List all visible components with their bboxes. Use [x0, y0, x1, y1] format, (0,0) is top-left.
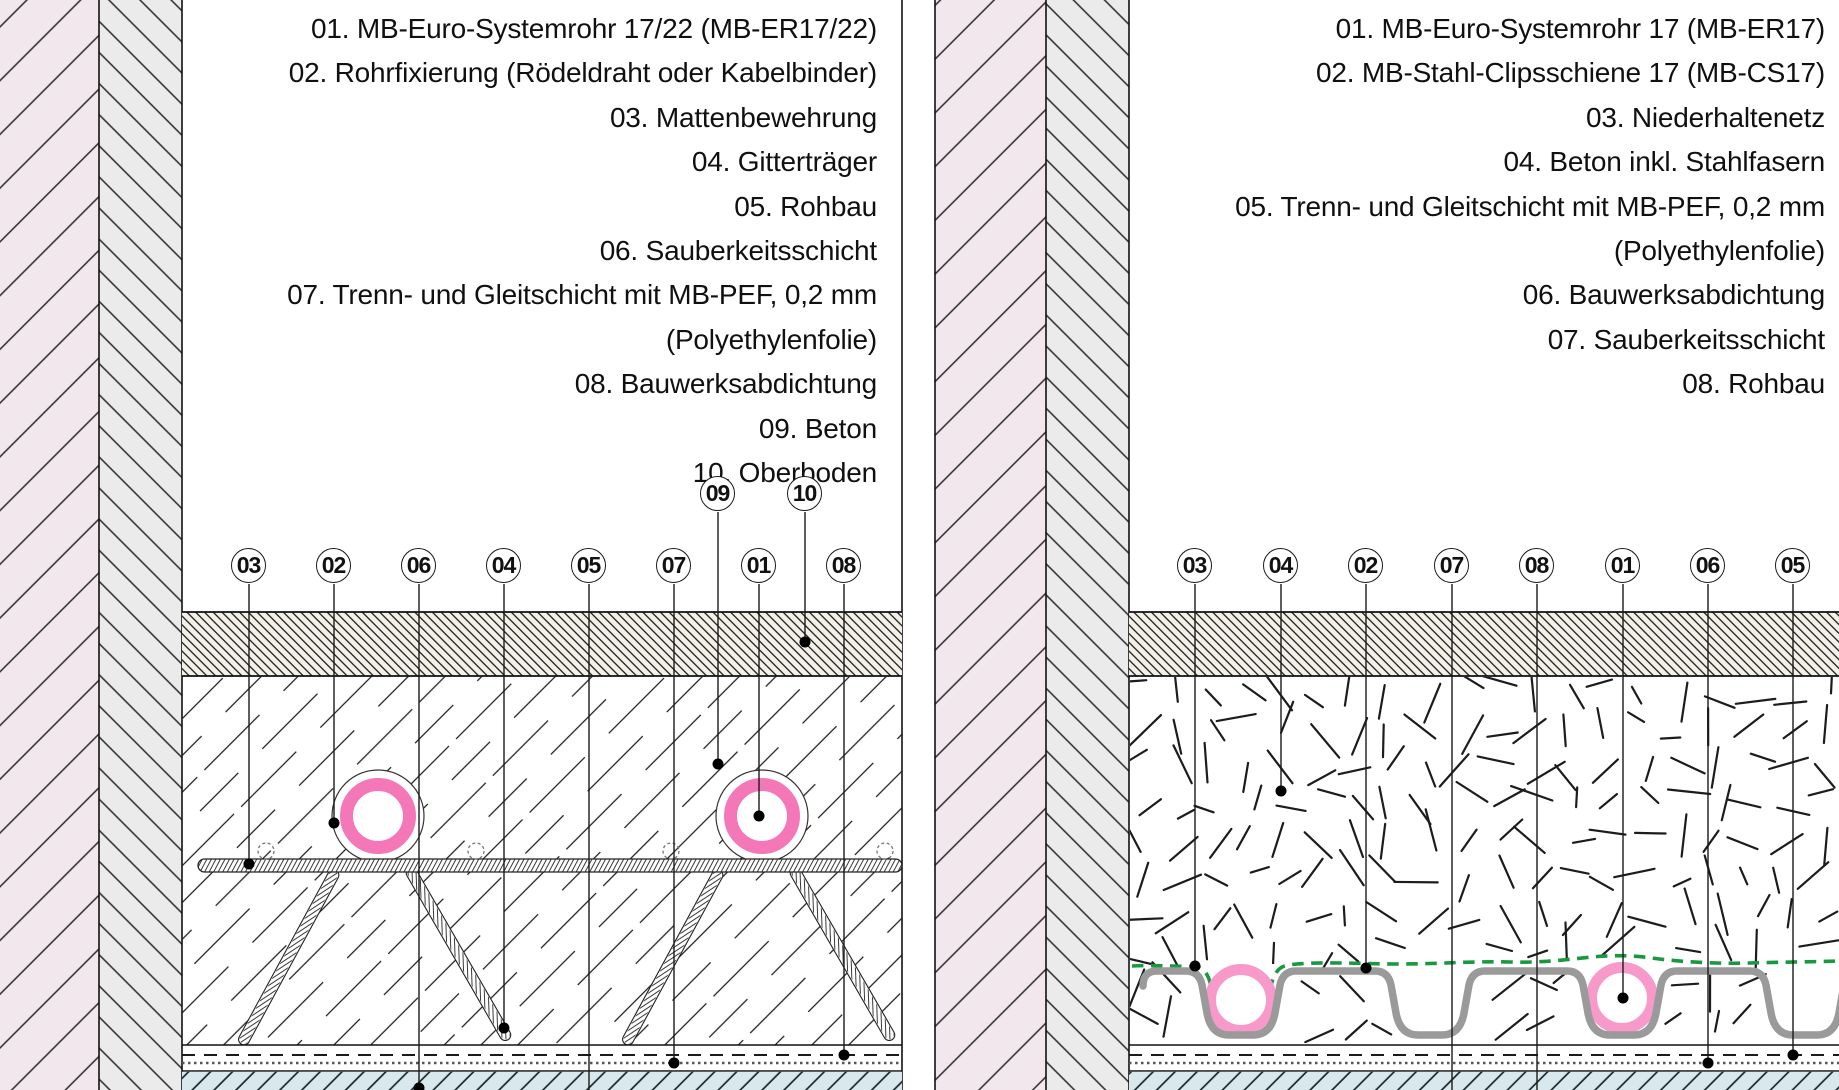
floor-heating-detail-sheet: 01. MB-Euro-Systemrohr 17/22 (MB-ER17/22…	[0, 0, 1839, 1090]
legend-line: (Polyethylenfolie)	[182, 318, 877, 362]
legend-line: 09. Beton	[182, 407, 877, 451]
right-legend: 01. MB-Euro-Systemrohr 17 (MB-ER17) 02. …	[1140, 7, 1825, 407]
callout-left-08: 08	[826, 548, 861, 583]
callout-label: 04	[1269, 552, 1293, 579]
legend-line: 10. Oberboden	[182, 451, 877, 495]
callout-label: 10	[793, 480, 817, 507]
callout-label: 02	[322, 552, 346, 579]
callout-right-03: 03	[1177, 548, 1212, 583]
mesh-reinforcement-bar	[198, 859, 902, 872]
callout-label: 04	[492, 552, 516, 579]
callout-left-03: 03	[231, 548, 266, 583]
callout-right-06: 06	[1690, 548, 1725, 583]
callout-label: 07	[662, 552, 686, 579]
callout-left-10: 10	[787, 476, 822, 511]
callout-right-07: 07	[1434, 548, 1469, 583]
legend-line: 07. Sauberkeitsschicht	[1140, 318, 1825, 362]
legend-line: (Polyethylenfolie)	[1140, 229, 1825, 273]
callout-right-04: 04	[1263, 548, 1298, 583]
callout-left-04: 04	[486, 548, 521, 583]
legend-line: 05. Rohbau	[182, 185, 877, 229]
right-bottom-layers	[1129, 1045, 1839, 1090]
callout-label: 07	[1440, 552, 1464, 579]
callout-left-05: 05	[571, 548, 606, 583]
callout-label: 09	[706, 480, 730, 507]
callout-label: 08	[1525, 552, 1549, 579]
heating-pipe	[1211, 970, 1272, 1031]
right-wall-section	[935, 0, 1129, 1090]
legend-line: 04. Beton inkl. Stahlfasern	[1140, 140, 1825, 184]
legend-line: 02. MB-Stahl-Clipsschiene 17 (MB-CS17)	[1140, 51, 1825, 95]
legend-line: 01. MB-Euro-Systemrohr 17/22 (MB-ER17/22…	[182, 7, 877, 51]
callout-left-07: 07	[656, 548, 691, 583]
legend-line: 05. Trenn- und Gleitschicht mit MB-PEF, …	[1140, 185, 1825, 229]
left-topping-band	[182, 612, 902, 676]
legend-line: 06. Bauwerksabdichtung	[1140, 273, 1825, 317]
callout-left-06: 06	[401, 548, 436, 583]
legend-line: 08. Rohbau	[1140, 362, 1825, 406]
legend-line: 02. Rohrfixierung (Rödeldraht oder Kabel…	[182, 51, 877, 95]
legend-line: 03. Mattenbewehrung	[182, 96, 877, 140]
heating-pipe	[347, 785, 410, 848]
callout-label: 03	[1183, 552, 1207, 579]
legend-line: 01. MB-Euro-Systemrohr 17 (MB-ER17)	[1140, 7, 1825, 51]
callout-label: 05	[577, 552, 601, 579]
legend-line: 06. Sauberkeitsschicht	[182, 229, 877, 273]
callout-label: 05	[1781, 552, 1805, 579]
callout-right-02: 02	[1348, 548, 1383, 583]
callout-label: 01	[1611, 552, 1635, 579]
callout-label: 02	[1354, 552, 1378, 579]
callout-label: 08	[832, 552, 856, 579]
legend-line: 04. Gitterträger	[182, 140, 877, 184]
legend-line: 08. Bauwerksabdichtung	[182, 362, 877, 406]
callout-label: 06	[1696, 552, 1720, 579]
left-legend: 01. MB-Euro-Systemrohr 17/22 (MB-ER17/22…	[182, 7, 877, 495]
callout-right-01: 01	[1605, 548, 1640, 583]
left-wall-section	[0, 0, 182, 1090]
callout-label: 03	[237, 552, 261, 579]
legend-line: 07. Trenn- und Gleitschicht mit MB-PEF, …	[182, 273, 877, 317]
legend-line: 03. Niederhaltenetz	[1140, 96, 1825, 140]
callout-label: 06	[407, 552, 431, 579]
right-topping-band	[1129, 612, 1839, 676]
callout-right-05: 05	[1775, 548, 1810, 583]
left-bottom-layers	[182, 1045, 902, 1090]
callout-left-09: 09	[700, 476, 735, 511]
callout-left-01: 01	[741, 548, 776, 583]
callout-right-08: 08	[1519, 548, 1554, 583]
callout-label: 01	[747, 552, 771, 579]
callout-left-02: 02	[316, 548, 351, 583]
